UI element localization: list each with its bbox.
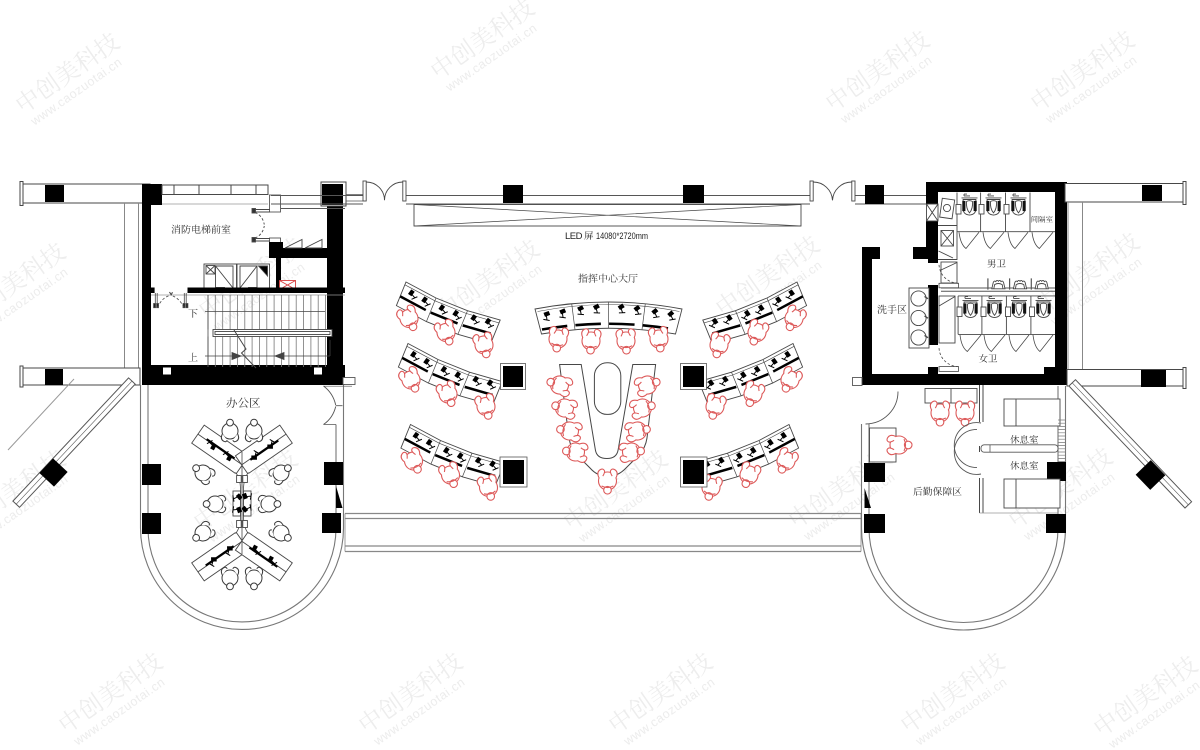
svg-text:LED: LED (565, 231, 583, 242)
svg-text:14080*2720mm: 14080*2720mm (596, 231, 648, 242)
